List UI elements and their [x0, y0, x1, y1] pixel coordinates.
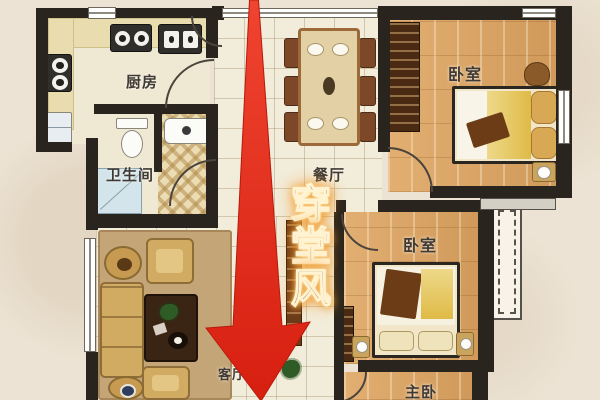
nightstand-icon	[456, 332, 474, 356]
window	[88, 7, 116, 19]
wardrobe-icon	[388, 22, 420, 132]
nightstand-icon	[352, 336, 370, 358]
wall	[336, 200, 346, 212]
wall	[86, 214, 218, 228]
wall	[86, 352, 98, 400]
wall	[472, 372, 488, 400]
bedroom-top-label: 卧室	[440, 61, 490, 85]
wall	[378, 200, 482, 212]
dining-chair	[359, 38, 376, 68]
bed-top-icon	[452, 86, 564, 164]
window	[522, 8, 556, 18]
wall	[36, 142, 72, 152]
fridge-icon	[46, 112, 72, 146]
window	[84, 238, 96, 352]
wall	[334, 212, 344, 400]
window	[558, 90, 570, 144]
armchair-icon	[146, 238, 194, 284]
side-table-icon	[104, 246, 142, 280]
toilet-tank-icon	[116, 118, 148, 129]
sofa-icon	[100, 282, 144, 378]
dining-table-icon	[298, 28, 360, 146]
stove-icon	[110, 24, 152, 52]
wall	[378, 8, 390, 152]
bedroom-middle-label: 卧室	[395, 232, 445, 256]
wall	[36, 8, 212, 18]
armchair-icon	[142, 366, 190, 400]
wall	[430, 186, 572, 198]
wall	[94, 104, 218, 114]
wall	[36, 8, 48, 150]
kitchen-label: 厨房	[118, 71, 166, 92]
floor-plan: 厨房 卫生间 餐厅 卧室 卧室 主卧 客厅 穿堂风	[0, 0, 600, 400]
ac-platform	[492, 204, 522, 320]
dining-chair	[359, 76, 376, 106]
dining-chair	[359, 112, 376, 142]
window	[222, 8, 378, 18]
wall	[358, 360, 482, 372]
kitchen-basin-icon	[46, 54, 72, 92]
draft-annotation: 穿堂风	[288, 184, 334, 310]
window	[480, 198, 556, 210]
kitchen-sink-top-icon	[158, 24, 202, 54]
bathroom-sink-icon	[164, 118, 212, 144]
master-bedroom-label: 主卧	[397, 381, 445, 400]
toilet-icon	[121, 130, 143, 158]
nightstand-icon	[532, 162, 556, 182]
bathroom-label: 卫生间	[95, 164, 165, 185]
living-label: 客厅	[210, 364, 254, 383]
wall	[478, 200, 494, 372]
wall	[206, 106, 218, 216]
coffee-table-icon	[144, 294, 198, 362]
teddy-bear-icon	[524, 62, 550, 86]
side-table-icon	[108, 376, 144, 400]
bed-middle-icon	[372, 262, 460, 358]
